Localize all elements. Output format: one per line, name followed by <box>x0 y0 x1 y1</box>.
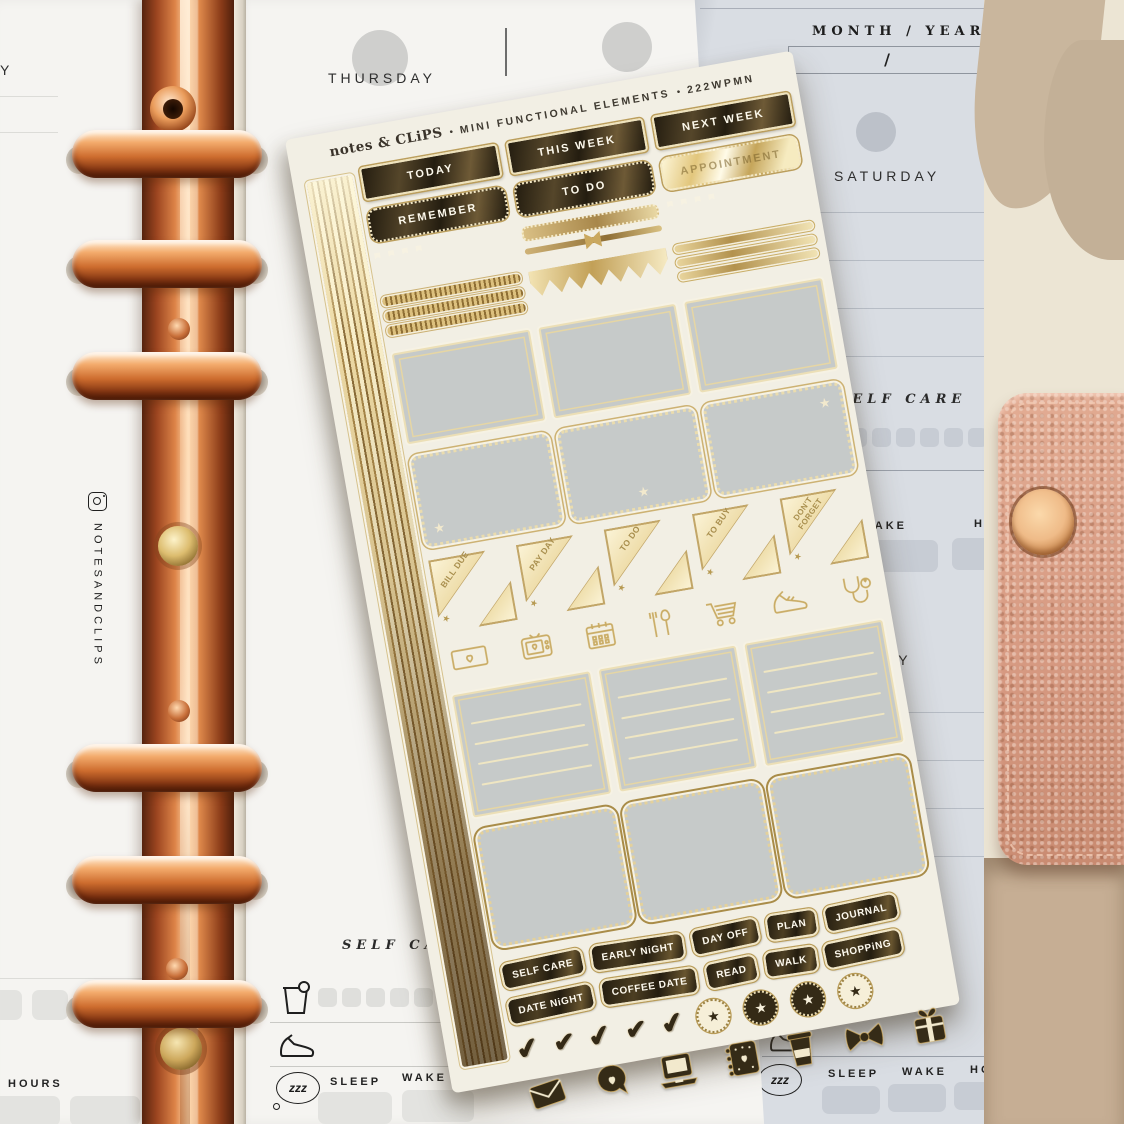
tan-paper-bottom <box>984 858 1124 1124</box>
sticker-read: READ <box>703 953 760 991</box>
coffee-cup-icon <box>781 1025 823 1077</box>
binder-ring <box>72 980 262 1028</box>
tracker-slot <box>32 990 68 1020</box>
planner-leather-strap <box>998 393 1124 865</box>
zzz-sleep-icon: zzz <box>276 1072 320 1104</box>
ruled-line <box>0 132 58 133</box>
tracker-slot <box>888 1084 946 1112</box>
stamp-box-sticker: ★ <box>703 381 857 496</box>
lined-box-sticker <box>745 620 904 766</box>
corner-sticker-bill-due: BILL DUE ★ <box>428 547 520 636</box>
sticker-day-off: DAY OFF <box>689 916 762 958</box>
water-glass-icon <box>280 980 312 1016</box>
tan-paper-patch <box>1044 40 1124 260</box>
day-heading-saturday: SATURDAY <box>834 168 940 184</box>
photo-scene: Y THURSDAY 1. 2. 3. NOTESANDCLIPS NOTESA… <box>0 0 1124 1124</box>
binder-ring <box>72 130 262 178</box>
left-edge-day-letter: Y <box>0 62 13 78</box>
tracker-slot <box>0 990 22 1020</box>
stethoscope-icon <box>836 570 876 614</box>
strap-button <box>1012 489 1074 555</box>
sticker-coffee-date: COFFEE DATE <box>599 965 700 1007</box>
star-badge-sticker: ★ <box>836 971 875 1010</box>
instagram-credit-left: NOTESANDCLIPS <box>88 492 107 668</box>
selfcare-checkboxes <box>318 988 438 1012</box>
lined-box-sticker <box>452 671 611 817</box>
laptop-icon <box>652 1048 703 1098</box>
checkmark-sticker: ✔ <box>513 1031 543 1067</box>
large-stamp-box-sticker <box>769 756 927 896</box>
star-badge-sticker: ★ <box>788 980 827 1019</box>
corner-sticker-to-buy: TO BUY ★ <box>692 500 784 589</box>
checkmark-sticker: ✔ <box>657 1005 687 1041</box>
planner-book-icon <box>720 1036 765 1087</box>
tracker-slot <box>70 1096 140 1124</box>
selfcare-checkboxes <box>848 428 992 452</box>
star-badge-sticker: ★ <box>741 988 780 1027</box>
sticker-shopping: SHOPPiNG <box>821 927 905 971</box>
sticker-walk: WALK <box>762 944 819 980</box>
binder-screw <box>168 318 190 340</box>
tracker-slot <box>402 1090 474 1122</box>
binder-screw-brass <box>158 526 198 566</box>
bow-icon <box>839 1017 889 1063</box>
checkmark-sticker: ✔ <box>585 1018 615 1054</box>
sticker-plan: PLAN <box>764 907 819 942</box>
lined-box-sticker <box>598 645 757 791</box>
sticker-journal: JOURNAL <box>822 891 901 934</box>
stamp-box-sticker: ★ <box>556 407 710 522</box>
box-sticker <box>684 278 838 393</box>
sleep-label: SLEEP <box>828 1068 879 1080</box>
sneaker-icon <box>278 1030 316 1062</box>
calendar-icon <box>581 616 621 658</box>
instagram-handle: NOTESANDCLIPS <box>92 523 104 668</box>
ruled-line <box>0 96 58 97</box>
binder-ring <box>72 856 262 904</box>
large-stamp-box-sticker <box>622 781 780 921</box>
money-bill-icon <box>447 640 492 681</box>
hours-label: HOURS <box>8 1078 63 1090</box>
punch-dot <box>602 22 652 72</box>
month-year-label: MONTH / YEAR: <box>812 24 995 39</box>
wake-label: WAKE <box>902 1066 947 1078</box>
corner-sticker-to-do: TO DO ★ <box>604 516 696 605</box>
day-heading-thursday: THURSDAY <box>328 70 436 86</box>
wake-label: WAKE <box>402 1072 447 1084</box>
binder-screw-brass <box>160 1028 202 1070</box>
column-divider <box>505 28 507 76</box>
tv-heart-icon <box>516 627 558 670</box>
sheet-sku: 222WPMN <box>686 73 755 97</box>
binder-ring <box>72 352 262 400</box>
corner-sticker-dont-forget: DON'T FORGET ★ <box>779 485 871 574</box>
shopping-cart-icon <box>702 594 744 637</box>
binder-ring <box>72 240 262 288</box>
star-badge-sticker: ★ <box>694 996 733 1035</box>
checkmark-sticker: ✔ <box>551 1027 575 1059</box>
utensils-icon <box>645 606 679 647</box>
binder-screw <box>168 700 190 722</box>
sneaker-icon <box>767 583 812 624</box>
tracker-slot <box>822 1086 880 1114</box>
binder-screw <box>150 86 196 132</box>
speech-bubble-heart-icon <box>589 1058 636 1109</box>
corner-sticker-pay-day: PAY DAY ★ <box>516 531 608 620</box>
binder-screw <box>166 958 188 980</box>
large-stamp-box-sticker <box>476 807 634 947</box>
sticker-early-night: EARLY NiGHT <box>589 931 687 973</box>
ruled-line <box>700 8 1005 9</box>
month-year-input: / <box>788 46 986 74</box>
bow-knot <box>584 231 603 250</box>
checkmark-sticker: ✔ <box>624 1014 648 1046</box>
envelope-icon <box>524 1072 572 1120</box>
sleep-label: SLEEP <box>330 1076 381 1088</box>
tracker-slot <box>0 1096 60 1124</box>
box-sticker <box>538 304 692 419</box>
binder-ring <box>72 744 262 792</box>
stamp-box-sticker: ★ <box>410 433 564 548</box>
desk-background <box>984 0 1124 1124</box>
gift-icon <box>906 1002 953 1053</box>
punch-dot <box>856 112 896 152</box>
self-care-heading: SELF CARE <box>838 392 966 407</box>
instagram-icon <box>88 492 107 511</box>
box-sticker <box>392 330 546 445</box>
tracker-slot <box>318 1092 392 1124</box>
